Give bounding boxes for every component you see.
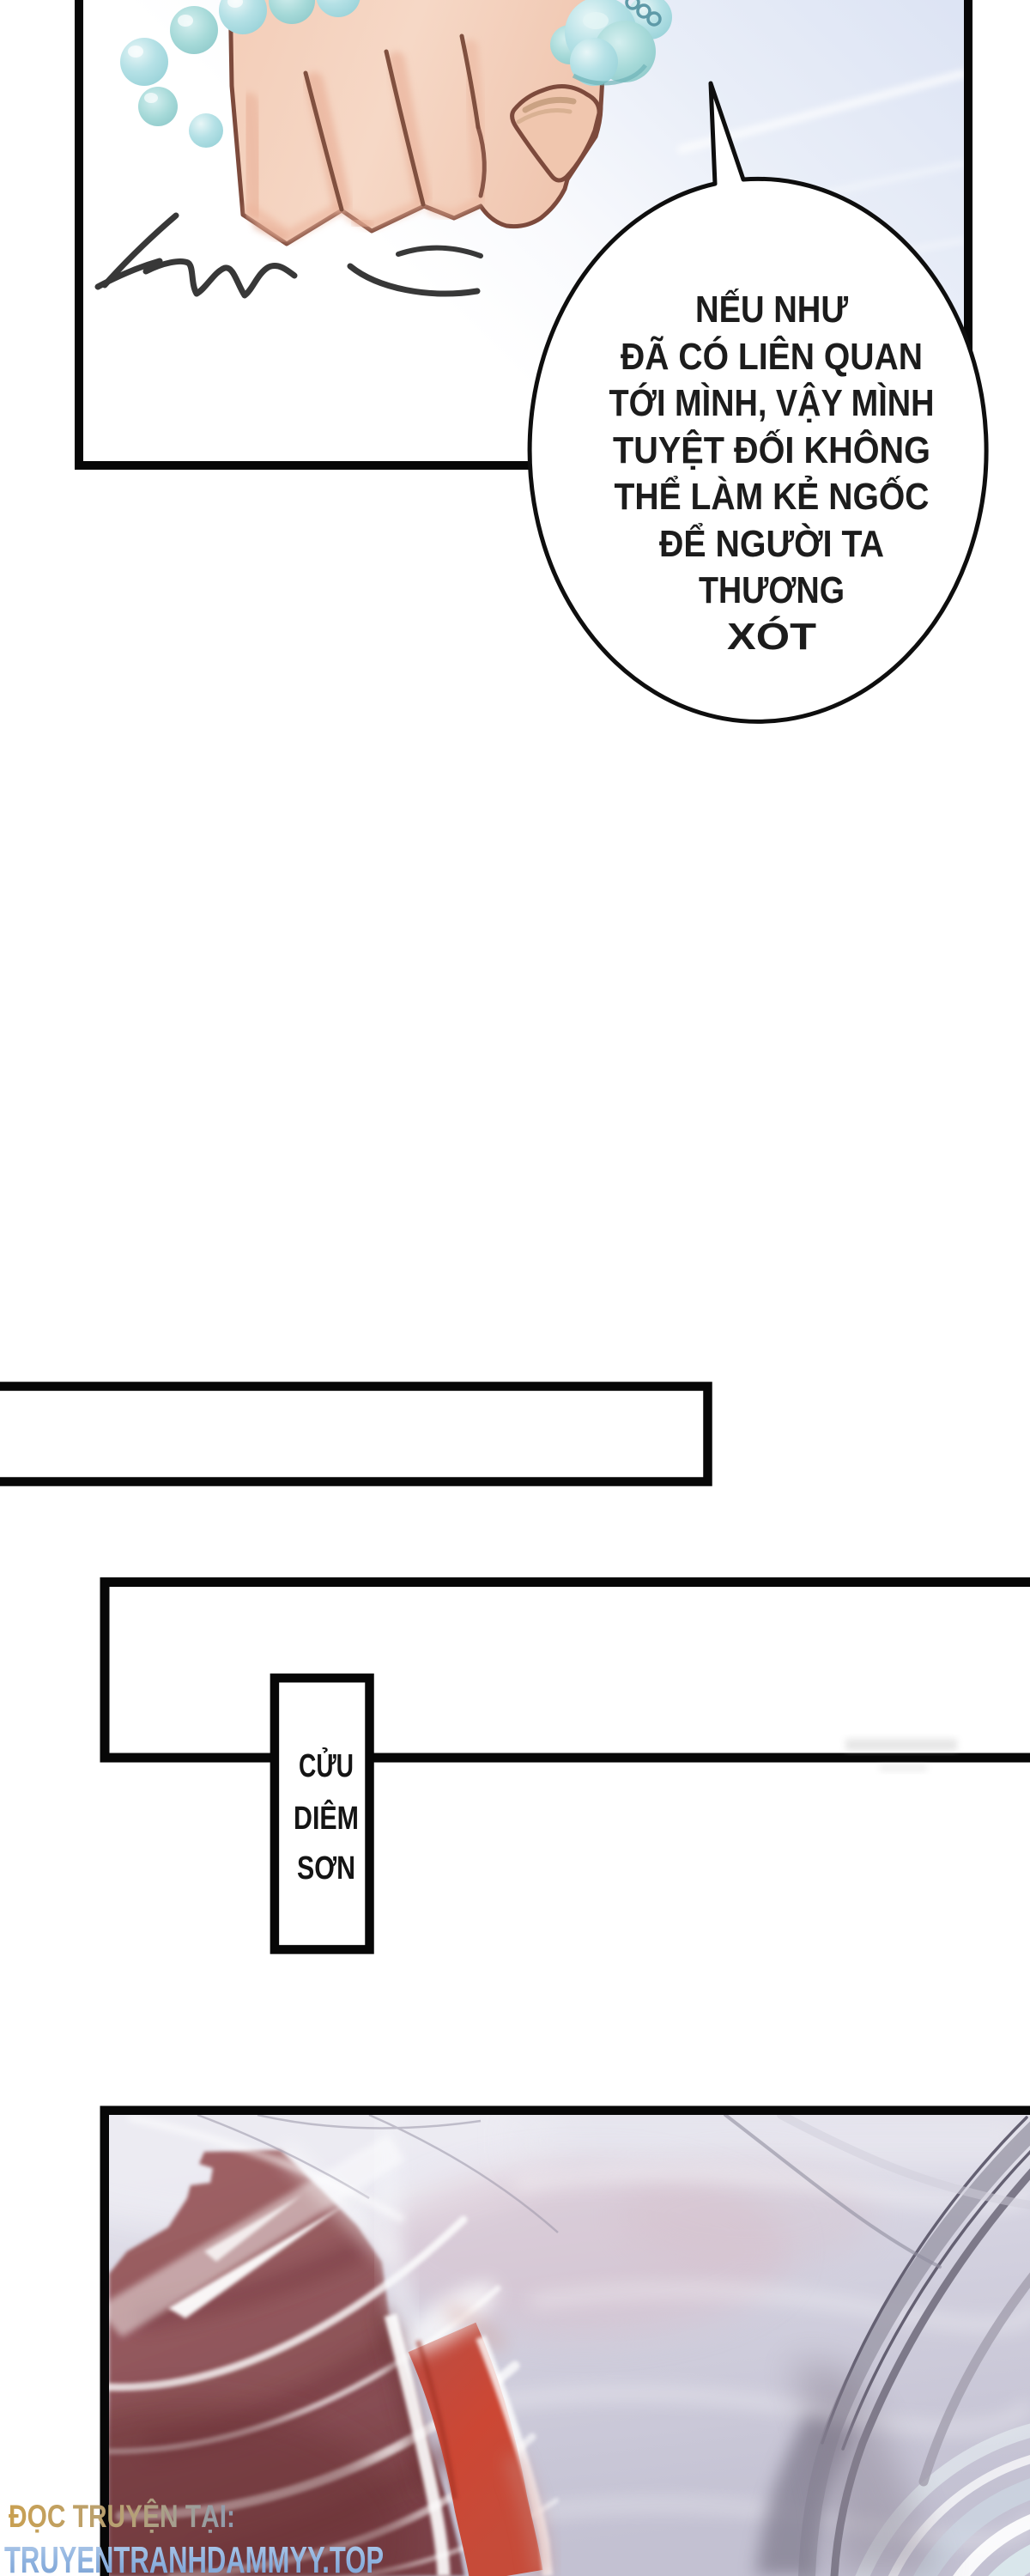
svg-text:THỂ LÀM KẺ NGỐC: THỂ LÀM KẺ NGỐC	[615, 474, 930, 518]
svg-text:DIÊM: DIÊM	[294, 1799, 359, 1837]
svg-text:TỚI MÌNH, VẬY MÌNH: TỚI MÌNH, VẬY MÌNH	[609, 381, 935, 424]
svg-text:SƠN: SƠN	[297, 1850, 355, 1886]
svg-text:NẾU NHƯ: NẾU NHƯ	[695, 288, 848, 331]
svg-text:XÓT: XÓT	[727, 615, 816, 658]
svg-text:THƯƠNG: THƯƠNG	[699, 569, 845, 611]
svg-text:ĐỂ NGƯỜI TA: ĐỂ NGƯỜI TA	[659, 521, 884, 565]
svg-text:ĐỌC TRUYỆN TẠI:: ĐỌC TRUYỆN TẠI:	[9, 2498, 235, 2534]
svg-text:ĐÃ CÓ LIÊN QUAN: ĐÃ CÓ LIÊN QUAN	[621, 335, 923, 378]
svg-text:CỬU: CỬU	[299, 1747, 354, 1784]
svg-text:TUYỆT ĐỐI KHÔNG: TUYỆT ĐỐI KHÔNG	[613, 428, 930, 471]
svg-text:TRUYENTRANHDAMMYY.TOP: TRUYENTRANHDAMMYY.TOP	[4, 2539, 384, 2576]
